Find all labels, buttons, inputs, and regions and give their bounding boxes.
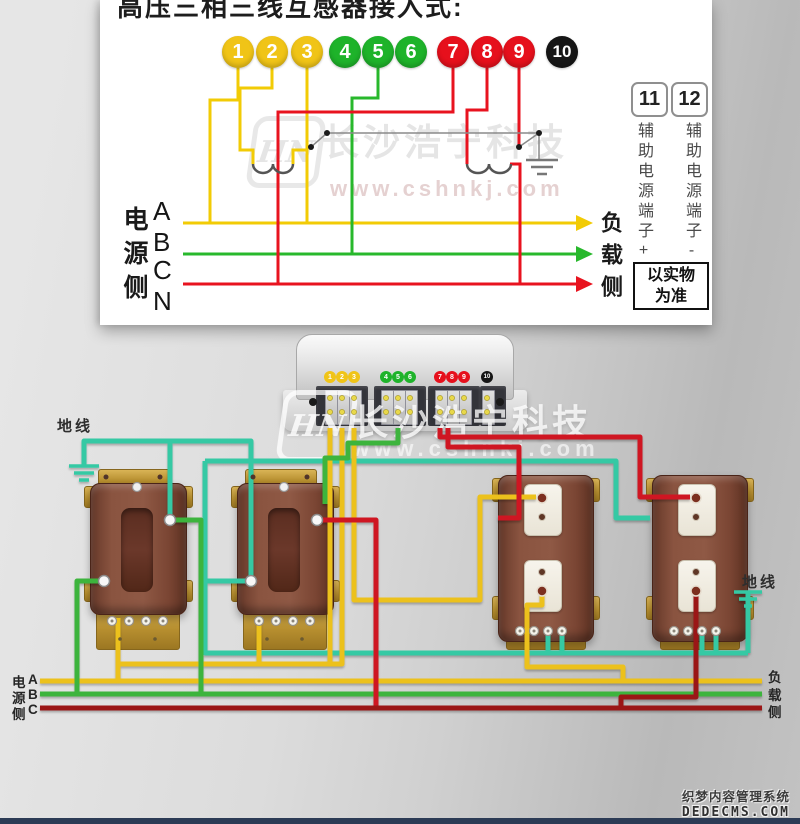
bus-load-char-1: 负 [768, 666, 782, 686]
meter-dot-8: 8 [446, 371, 458, 383]
meter-dot-9: 9 [458, 371, 470, 383]
ct1-top-panel [524, 484, 562, 536]
instruction-panel: 高压三相三线互感器接入式: HN 长沙浩宁科技 www.cshnkj.com 1… [100, 0, 712, 325]
meter-dot-1: 1 [324, 371, 336, 383]
note-line2: 为准 [655, 286, 687, 307]
pt1-slot [121, 508, 153, 592]
aux-label-plus: 辅助电源端子+ [631, 122, 655, 263]
watermark-logo: HN [275, 390, 359, 462]
meter-dot-5: 5 [392, 371, 404, 383]
phase-c-label: C [153, 255, 172, 286]
phase-a-label: A [153, 196, 170, 227]
aux-terminal-12: 12 [671, 82, 708, 117]
bus-source-char-3: 侧 [12, 703, 26, 723]
bus-phase-c: C [28, 702, 38, 717]
meter-dot-6: 6 [404, 371, 416, 383]
note-box: 以实物 为准 [633, 262, 709, 310]
phase-b-label: B [153, 227, 170, 258]
ct2-bottom-panel [678, 560, 716, 612]
ct1-bottom-panel [524, 560, 562, 612]
source-side-label: 电源侧 [116, 206, 152, 308]
phase-n-label: N [153, 286, 172, 317]
meter-dot-4: 4 [380, 371, 392, 383]
base-screws [108, 617, 721, 641]
ground-symbol-left [69, 466, 99, 480]
ground-label-left: 地线 [57, 415, 93, 436]
watermark-url: www.cshnkj.com [330, 176, 564, 202]
meter-dot-2: 2 [336, 371, 348, 383]
bus-phase-a: A [28, 672, 38, 687]
watermark-brand: 长沙浩宁科技 [322, 112, 568, 166]
aux-label-minus: 辅助电源端子- [679, 122, 703, 263]
meter-dot-7: 7 [434, 371, 446, 383]
ground-label-right: 地线 [742, 571, 778, 592]
bus-phase-b: B [28, 687, 38, 702]
load-side-label: 负载侧 [594, 211, 626, 307]
meter-dot-10: 10 [481, 371, 493, 383]
ct2-top-panel [678, 484, 716, 536]
note-line1: 以实物 [647, 265, 695, 286]
aux-terminal-11: 11 [631, 82, 668, 117]
watermark-logo: HN [245, 116, 327, 188]
meter-dot-3: 3 [348, 371, 360, 383]
diagram-stage: 高压三相三线互感器接入式: HN 长沙浩宁科技 www.cshnkj.com 1… [0, 0, 800, 824]
pt2-slot [268, 508, 300, 592]
bus-load-char-3: 侧 [768, 701, 782, 721]
watermark-url: www.cshnkj.com [352, 436, 600, 462]
cms-watermark: 织梦内容管理系统 DEDECMS.COM [682, 786, 790, 820]
cms-watermark-line1: 织梦内容管理系统 [682, 786, 790, 805]
footer-strip [0, 818, 800, 824]
panel-title: 高压三相三线互感器接入式: [117, 0, 464, 24]
